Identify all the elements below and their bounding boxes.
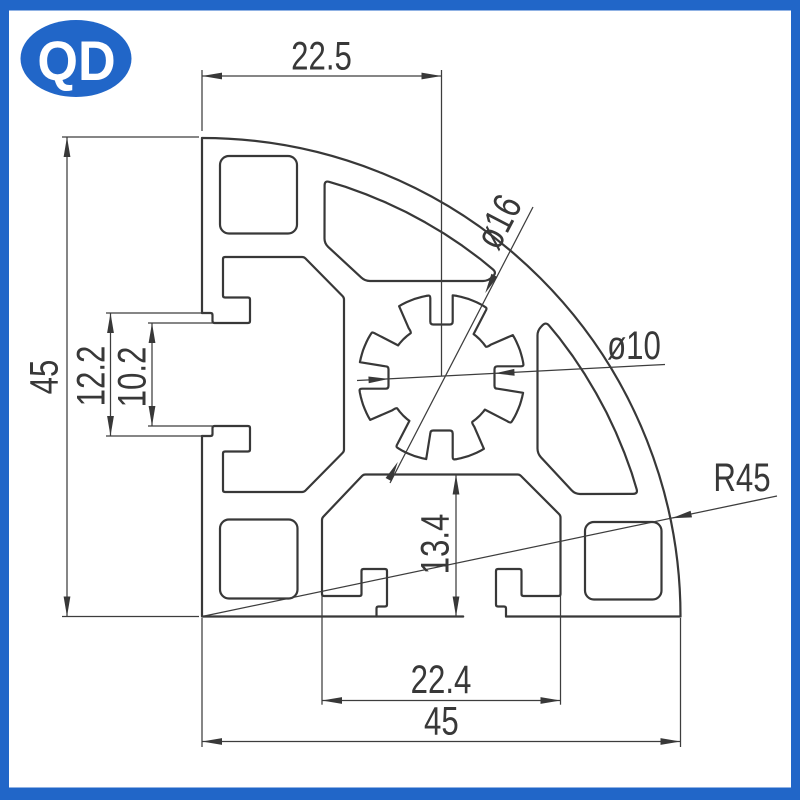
svg-text:13.4: 13.4 bbox=[413, 514, 458, 575]
svg-text:R45: R45 bbox=[713, 455, 770, 500]
svg-text:45: 45 bbox=[22, 360, 67, 395]
svg-text:QD: QD bbox=[37, 31, 115, 93]
svg-text:22.5: 22.5 bbox=[291, 34, 352, 79]
svg-text:22.4: 22.4 bbox=[411, 657, 472, 702]
svg-text:ø10: ø10 bbox=[607, 323, 661, 368]
svg-text:45: 45 bbox=[424, 699, 459, 744]
svg-text:10.2: 10.2 bbox=[110, 347, 155, 408]
svg-text:12.2: 12.2 bbox=[69, 346, 114, 407]
